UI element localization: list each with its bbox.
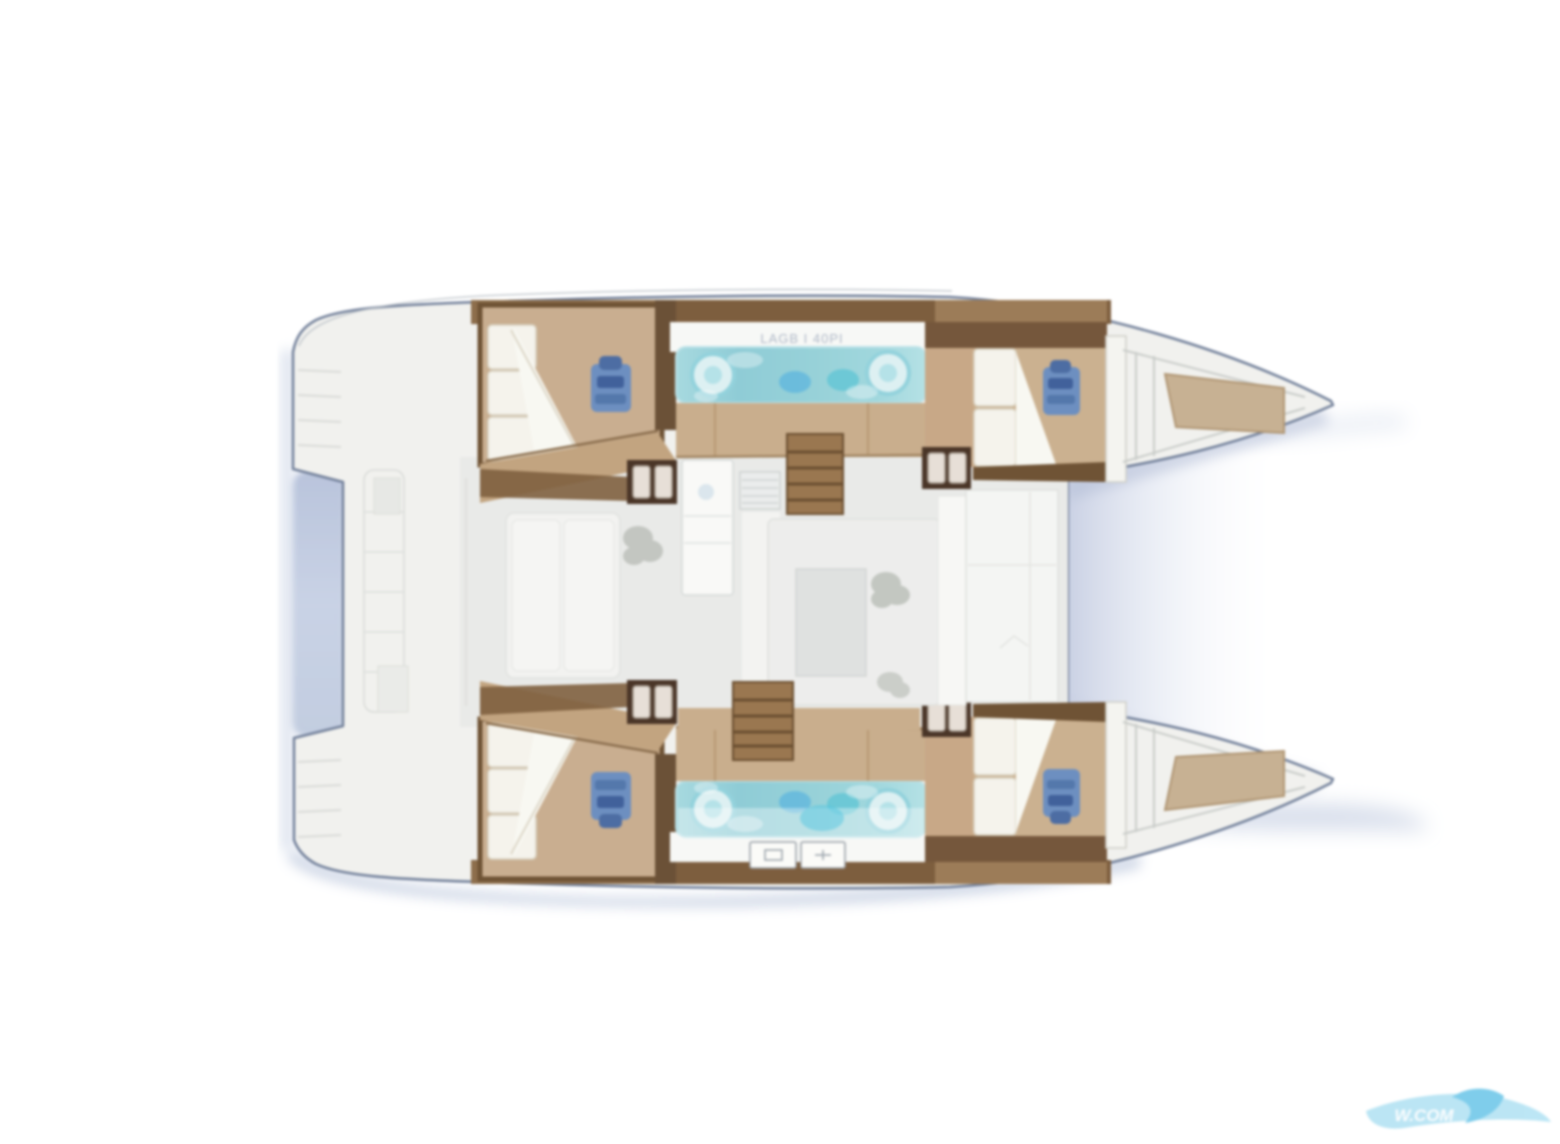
svg-text:W.COM: W.COM [1394, 1106, 1454, 1125]
svg-text:LAGB I 40PI: LAGB I 40PI [760, 331, 843, 346]
